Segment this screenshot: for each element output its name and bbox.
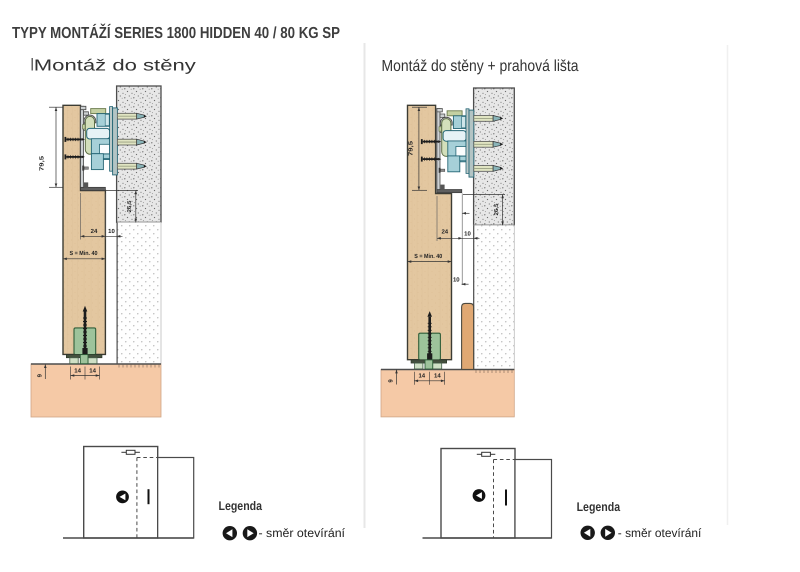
svg-text:S = Min. 40: S = Min. 40 — [70, 250, 99, 257]
svg-text:79,5: 79,5 — [39, 155, 46, 171]
svg-text:14: 14 — [89, 367, 96, 374]
svg-text:Legenda: Legenda — [219, 499, 263, 513]
svg-text:TYPY MONTÁŽÍ SERIES 1800 HIDDE: TYPY MONTÁŽÍ SERIES 1800 HIDDEN 40 / 80 … — [12, 23, 340, 42]
svg-text:14: 14 — [74, 367, 81, 374]
svg-text:10: 10 — [108, 228, 115, 235]
svg-text:24: 24 — [441, 229, 448, 236]
svg-text:14: 14 — [418, 373, 425, 380]
svg-text:10: 10 — [453, 277, 460, 284]
svg-text:- směr otevírání: - směr otevírání — [259, 526, 346, 540]
svg-text:Montáž do stěny + prahová lišt: Montáž do stěny + prahová lišta — [382, 58, 579, 75]
svg-text:79,5: 79,5 — [407, 140, 414, 156]
svg-text:- směr otevírání: - směr otevírání — [618, 526, 702, 540]
svg-text:Montáž do stěny: Montáž do stěny — [34, 58, 196, 75]
svg-text:Legenda: Legenda — [577, 500, 621, 514]
svg-text:26,5: 26,5 — [494, 204, 500, 216]
svg-text:10: 10 — [464, 230, 471, 237]
svg-text:24: 24 — [91, 228, 98, 235]
svg-text:26,5: 26,5 — [127, 201, 133, 213]
svg-text:S = Min. 40: S = Min. 40 — [414, 253, 443, 260]
svg-text:14: 14 — [434, 373, 441, 380]
